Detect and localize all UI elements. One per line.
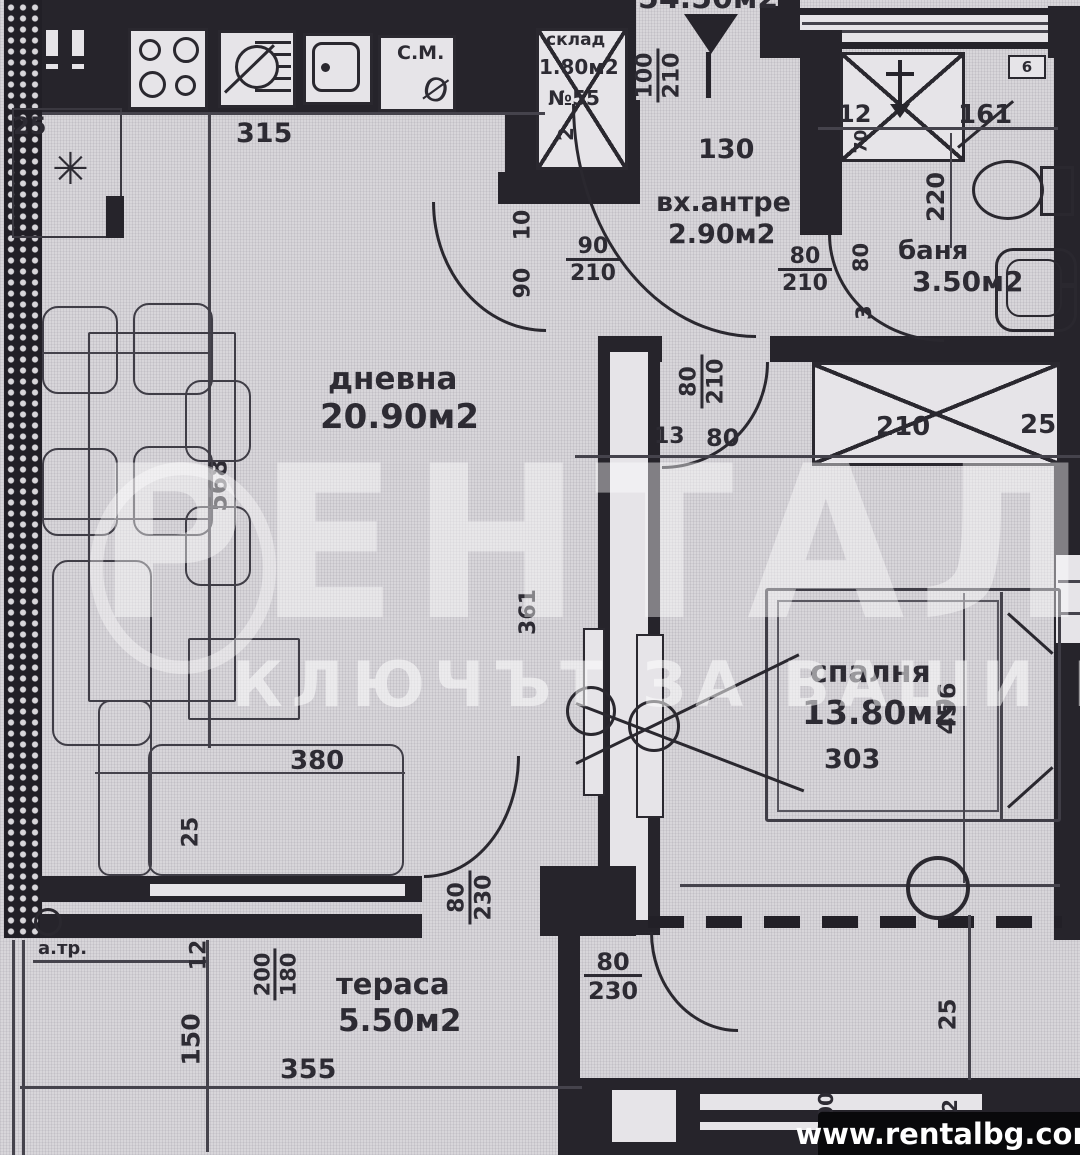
star-symbol-icon: ✳	[52, 148, 89, 192]
entrance-arrow-stem	[706, 52, 711, 98]
sofa-icon	[148, 744, 404, 876]
terrace-name: тераса	[336, 970, 450, 999]
website-banner: www.rentalbg.com	[818, 1112, 1080, 1155]
burner-icon	[139, 71, 166, 98]
dim-label: 161	[958, 102, 1012, 128]
dim-label: 380	[290, 748, 344, 774]
lower-terrace-left-wall	[558, 930, 580, 1082]
hall-area: 2.90м2	[668, 221, 775, 248]
bedroom-terrace-door-arc	[650, 932, 738, 1032]
living-bottom-wall-inner	[40, 914, 422, 938]
shower-head-spray	[890, 104, 910, 118]
corner-block	[540, 866, 636, 936]
drain-circle-icon	[34, 908, 62, 936]
fridge-dash	[46, 64, 58, 69]
terrace-rail-line	[22, 940, 25, 1155]
bath-left-wall	[800, 30, 842, 235]
table-line	[42, 352, 210, 354]
website-url: www.rentalbg.com	[795, 1117, 1080, 1151]
dim-label: 70	[850, 126, 874, 156]
terrace-door-size: 80230	[440, 860, 502, 934]
fridge-tick	[46, 30, 58, 56]
bedroom-terrace-door-size: 80230	[584, 950, 642, 1003]
dim-label: 12	[184, 938, 214, 972]
watermark-tagline: КЛЮЧЪТ ЗА ВАШИ МЕЧТИ	[232, 648, 1080, 721]
dim-label: 12	[838, 102, 871, 126]
living-name: дневна	[328, 364, 457, 395]
bath-name: баня	[898, 238, 968, 264]
counter-line	[42, 112, 545, 115]
basin-circle-icon	[235, 45, 279, 89]
kitchen-sink-icon	[303, 33, 373, 105]
dim-label: 355	[280, 1056, 336, 1083]
diameter-mark: Ø	[420, 71, 452, 108]
floor-plan: С.М. Ø 25 ✳ склад 1.80м2 №55 2 54.50м2 1…	[0, 0, 1080, 1155]
terrace-rail-line	[12, 940, 15, 1155]
dim-label: 80	[848, 240, 876, 274]
vent-label: 6	[1022, 58, 1032, 76]
dim-line	[95, 772, 405, 774]
hall-name: вх.антре	[656, 189, 791, 216]
storage-name: склад	[546, 32, 605, 49]
stove-icon	[128, 28, 208, 110]
dim-label: 25	[13, 114, 46, 138]
entrance-door-size: 100210	[630, 42, 688, 108]
niche-stub	[106, 196, 124, 238]
storage-area: 1.80м2	[539, 57, 619, 77]
shower-head-icon	[898, 60, 902, 106]
living-bottom-window	[150, 884, 405, 896]
drain-label: а.тр.	[38, 940, 87, 958]
bath-area: 3.50м2	[912, 268, 1023, 296]
fridge-dash	[72, 64, 84, 69]
dim-label: 25	[176, 814, 206, 850]
window-top-line	[800, 8, 1054, 15]
washing-machine-label: С.М.	[397, 44, 444, 63]
hall-living-door-arc	[432, 202, 546, 332]
bedroom-dim: 303	[824, 746, 880, 773]
dim-label: 25	[934, 994, 964, 1034]
sofa-chaise-icon	[98, 700, 152, 876]
dim-label: 220	[918, 166, 954, 228]
column-circle	[906, 856, 970, 920]
burner-icon	[139, 39, 161, 61]
terrace-area: 5.50м2	[338, 1006, 461, 1037]
washing-machine-icon: С.М. Ø	[378, 35, 456, 112]
total-area-label: 54.50м2	[638, 0, 778, 14]
bath-door-size: 80210	[778, 246, 832, 295]
shower-head-bar	[886, 72, 914, 76]
toilet-icon	[972, 160, 1044, 220]
sink-drain-dot	[321, 63, 330, 72]
watermark-title: РЕНТАЛ	[96, 420, 1080, 667]
cooktop-sink-icon	[218, 30, 296, 108]
fridge-tick	[72, 30, 84, 56]
burner-icon	[175, 75, 196, 96]
sink-basin	[312, 42, 360, 92]
dim-line	[950, 133, 952, 248]
dim-line	[968, 915, 971, 1080]
lintel-line	[680, 884, 1060, 887]
bottom-window-a	[612, 1090, 676, 1142]
terrace-edge-line	[20, 1086, 582, 1089]
entrance-arrow-icon	[684, 14, 738, 54]
dim-label: 150	[174, 1006, 208, 1072]
dim-line	[33, 960, 208, 963]
dim-label: 3	[850, 298, 878, 326]
dim-label: 315	[236, 120, 292, 147]
vent-box: 6	[1008, 55, 1046, 79]
burner-icon	[173, 37, 199, 63]
terrace-dashed-boundary	[648, 916, 1062, 928]
toilet-tank	[1040, 166, 1074, 216]
window-glass-line	[802, 22, 1052, 25]
hall-door-size: 90210	[566, 236, 620, 285]
faucet-dash	[1060, 283, 1076, 288]
terrace-rail-size: 200180	[244, 936, 308, 1012]
